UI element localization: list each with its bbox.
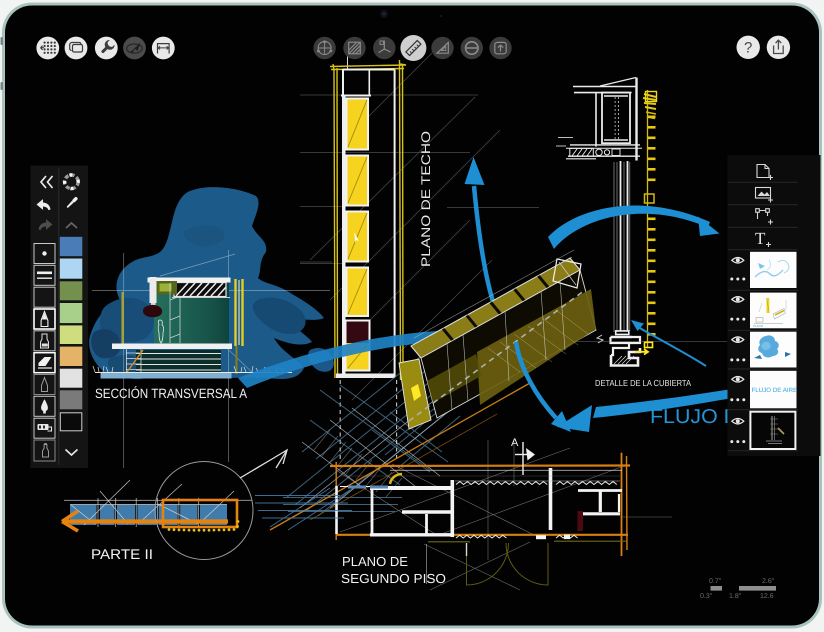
svg-text:DETALLE DE LA CUBIERTA: DETALLE DE LA CUBIERTA xyxy=(595,378,691,388)
svg-text:PLANO DE TECHO: PLANO DE TECHO xyxy=(419,131,433,267)
svg-text:1.8": 1.8" xyxy=(729,593,742,600)
svg-text:2.6": 2.6" xyxy=(762,578,775,585)
svg-text:PLANO: PLANO xyxy=(753,324,764,328)
svg-text:?: ? xyxy=(744,40,752,57)
svg-text:SECCIÓN TRANSVERSAL A: SECCIÓN TRANSVERSAL A xyxy=(95,386,247,401)
svg-text:FLUJO DE AIRE: FLUJO DE AIRE xyxy=(752,387,798,394)
svg-text:T: T xyxy=(755,229,766,248)
svg-text:0.3": 0.3" xyxy=(700,593,713,600)
svg-text:A: A xyxy=(511,437,519,449)
svg-text:PLANO DE: PLANO DE xyxy=(342,554,408,569)
svg-text:12.6: 12.6 xyxy=(760,593,774,600)
svg-text:PARTE II: PARTE II xyxy=(91,546,153,562)
svg-text:0.7": 0.7" xyxy=(709,578,722,585)
svg-text:SEGUNDO PISO: SEGUNDO PISO xyxy=(341,571,446,586)
